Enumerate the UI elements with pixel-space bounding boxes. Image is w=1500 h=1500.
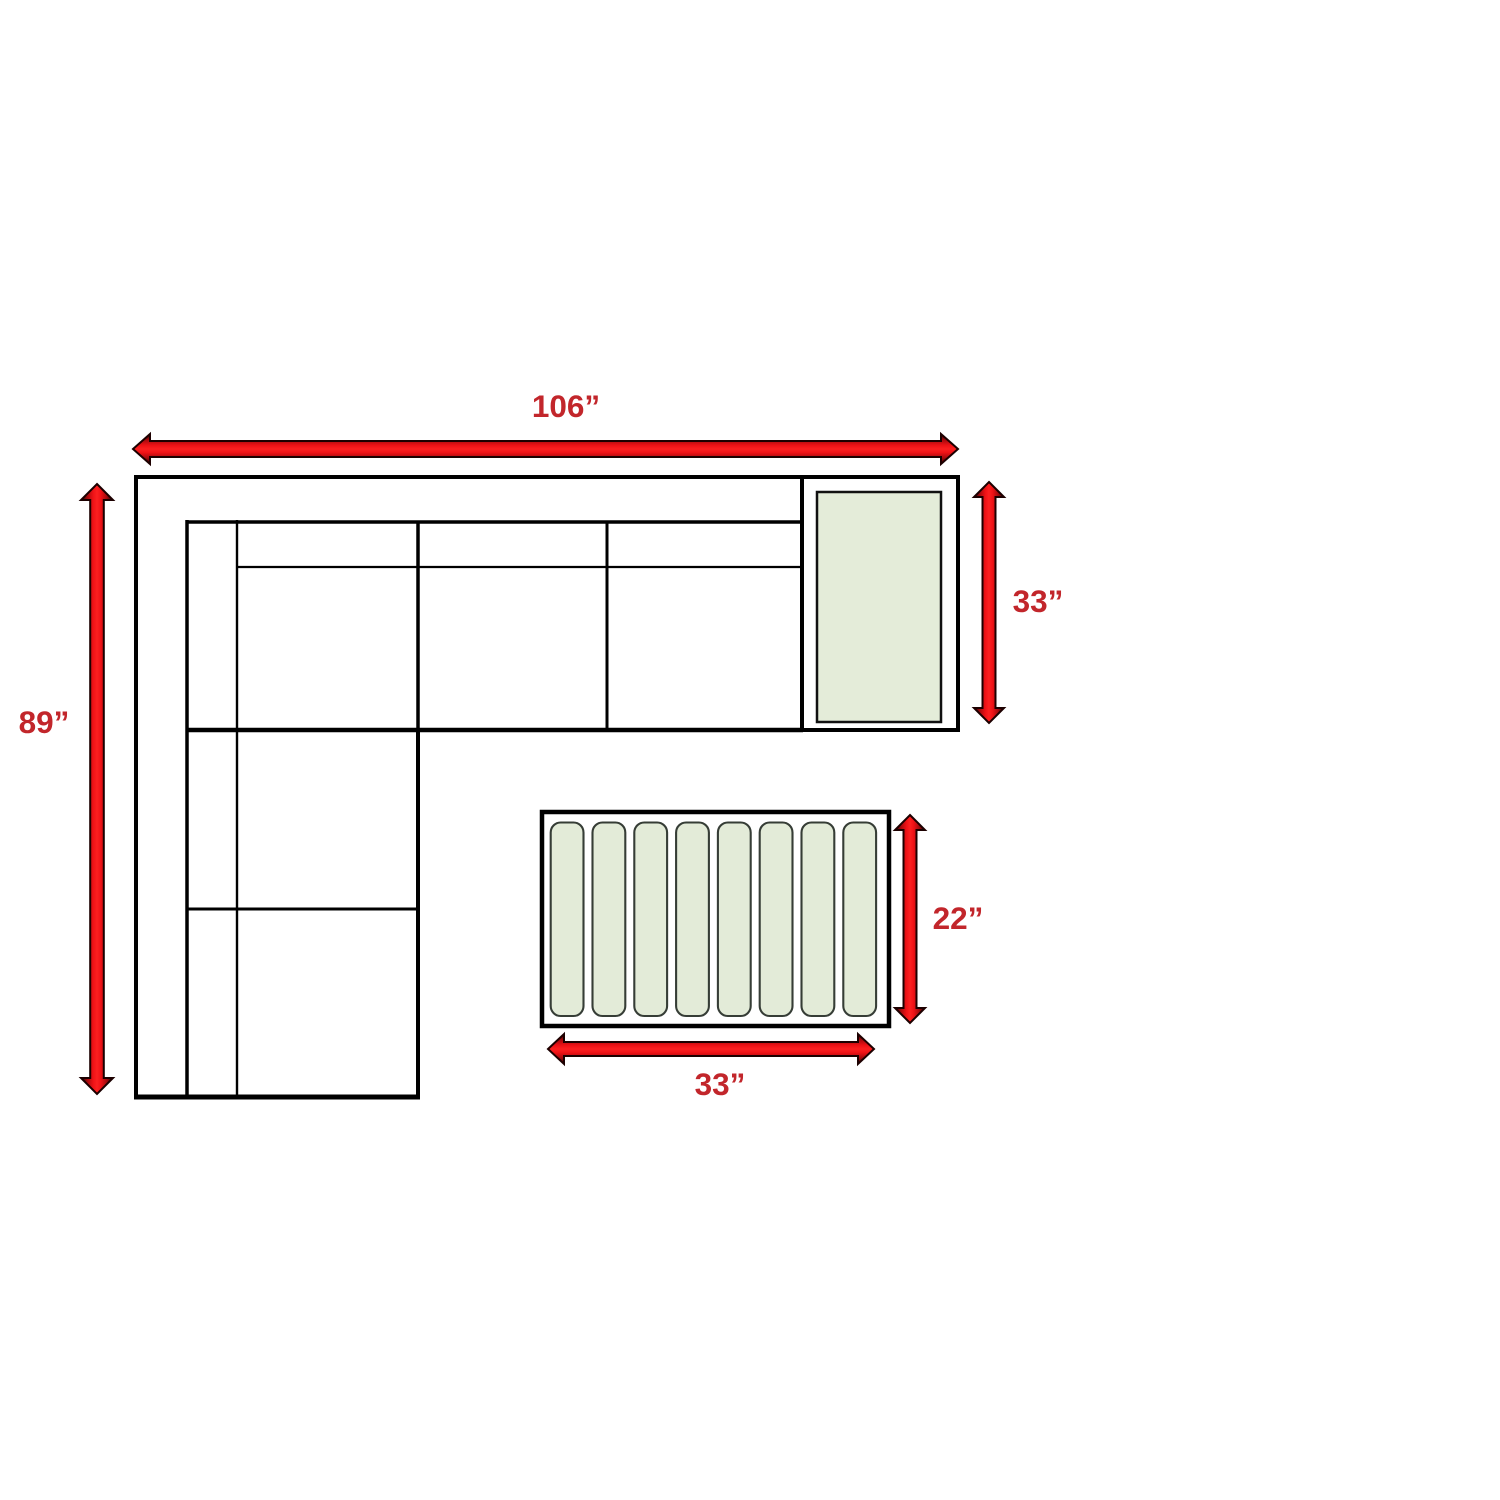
svg-text:33”: 33” — [695, 1066, 746, 1102]
svg-text:89”: 89” — [19, 704, 70, 740]
svg-text:106”: 106” — [532, 388, 600, 424]
svg-text:33”: 33” — [1013, 583, 1064, 619]
svg-text:22”: 22” — [933, 900, 984, 936]
